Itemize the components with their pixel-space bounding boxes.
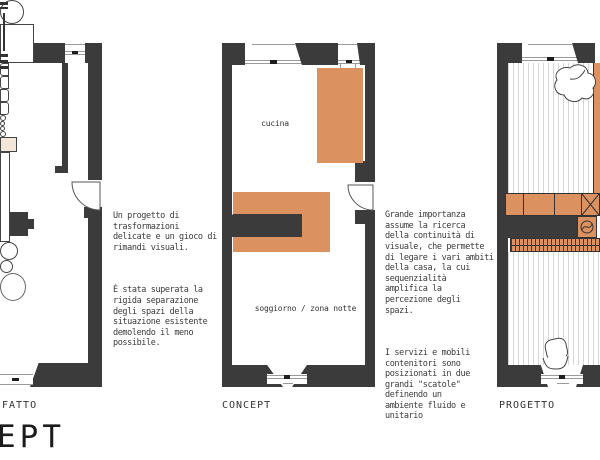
side-table-icon [0, 242, 18, 260]
window [522, 43, 578, 63]
floor [508, 63, 595, 193]
wardrobe [510, 238, 600, 252]
window-tick [559, 375, 565, 379]
window [541, 374, 583, 384]
chair-icon [0, 63, 9, 76]
plan-label-progetto: PROGETTO [499, 400, 555, 411]
bookshelf-band [0, 66, 8, 69]
chair-icon [0, 76, 9, 89]
wardrobe-midline [511, 245, 599, 246]
chair-icon [0, 89, 9, 102]
plan-progetto [0, 0, 600, 400]
wall-segment [497, 216, 577, 238]
floor [508, 252, 600, 365]
annotation-right: Grande importanza assume la ricerca dell… [385, 189, 494, 443]
bookshelf-line [3, 13, 5, 51]
counter-divider [581, 194, 582, 215]
bookshelf-band [0, 2, 8, 5]
kitchen-counter [505, 193, 600, 216]
watermark: EPT [0, 419, 65, 455]
bookshelf-band [0, 60, 8, 63]
annotation-paragraph: Grande importanza assume la ricerca dell… [385, 210, 494, 316]
side-table-icon [0, 260, 13, 273]
bookshelf-band [0, 7, 8, 9]
washing-machine-icon [577, 216, 597, 238]
counter-divider [523, 194, 524, 215]
window-line [557, 383, 569, 384]
chair-icon [0, 102, 9, 115]
annotation-paragraph: È stata superata la rigida separazione d… [113, 285, 217, 349]
annotation-paragraph: I servizi e mobili contenitori sono posi… [385, 348, 494, 422]
window-tick [547, 57, 554, 61]
sink-icon [0, 137, 17, 152]
window-line [528, 44, 572, 45]
tall-cabinet [593, 63, 600, 193]
presentation-board: cucina soggiorno / zona notte [0, 0, 600, 460]
plan-label-concept: CONCEPT [222, 400, 271, 411]
bookshelf [0, 152, 10, 242]
annotation-left: Un progetto di trasformazioni delicate e… [113, 190, 217, 370]
bookshelf-band [0, 54, 8, 57]
plan-label-fatto: FATTO [2, 400, 37, 411]
door-arc-icon [0, 273, 26, 301]
dining-table [0, 24, 34, 63]
annotation-paragraph: Un progetto di trasformazioni delicate e… [113, 211, 217, 253]
counter-divider [554, 194, 555, 215]
